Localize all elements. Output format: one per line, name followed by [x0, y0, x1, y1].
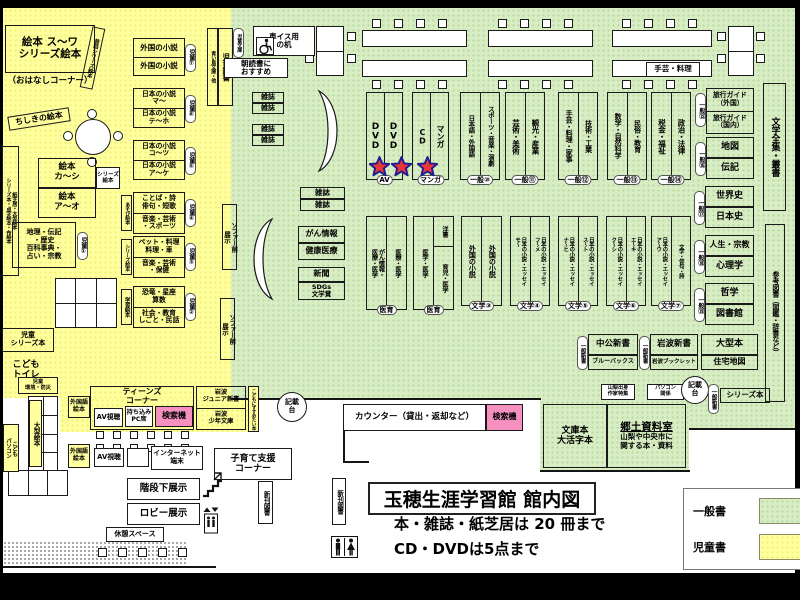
shelf-cell	[76, 304, 95, 328]
chair	[181, 431, 189, 439]
shelf-gakushu-ehon: 学習絵本	[121, 289, 132, 325]
display-lobby: ロビー展示	[127, 503, 200, 525]
chair	[666, 19, 675, 28]
tag-jido-6: 児童⑥	[185, 95, 196, 123]
chair	[622, 80, 631, 89]
shelf-general-12: 手芸・料理・家事技術・工業一般⑫	[558, 92, 598, 180]
chair	[644, 80, 653, 89]
display-pc-books: パソコン関係	[647, 384, 684, 400]
shelf-magazines: 雑誌	[252, 135, 284, 146]
star-marker	[417, 156, 438, 177]
chair	[644, 19, 653, 28]
legend-label-children: 児童書	[693, 539, 726, 555]
counter-edge	[343, 431, 345, 463]
shelf-cell	[9, 471, 28, 495]
counter-edge	[343, 461, 369, 463]
shelf-literature-4: 日本の小説・エッセイモ〜日本の小説・エッセイフ〜メ文学④	[510, 216, 550, 306]
shelf-cell	[97, 279, 116, 303]
chair	[622, 19, 631, 28]
shelf-medical-2: 医学・医学洋書育児・医学医育	[413, 216, 454, 310]
writing-stand-right: 記載台	[681, 376, 709, 404]
shelf-literature-3: 外国の小説外国の小説文学③	[461, 216, 502, 306]
display-asadokusho: 朝読書におすすめ	[224, 58, 288, 78]
tag-general-15: 一般⑮	[695, 93, 706, 127]
shelf-cell	[97, 304, 116, 328]
lobby-bench	[8, 470, 68, 496]
shelf-kyoryu-seiza: 恐竜・星座算数社会・教育しごと・民話	[133, 286, 185, 328]
reading-table	[488, 30, 593, 47]
display-sofa-front-2: ソファー前展示	[220, 298, 235, 360]
shelf-bunkobon: 文庫本大活字本	[543, 404, 607, 468]
shelf-chiri-denki: 地理・伝記・歴史百科事典・占い・宗教	[12, 222, 76, 268]
tag-general-16: 一般⑯	[695, 142, 706, 176]
chair	[564, 19, 573, 28]
shelf-cell	[48, 471, 67, 495]
chair	[130, 431, 138, 439]
shelf-ehon-ka-shi: 絵本カ〜シ	[38, 158, 96, 188]
shelf-world-history: 世界史	[705, 186, 754, 207]
shelf-magazines: 雑誌	[252, 103, 284, 114]
kids-chair	[87, 109, 97, 119]
shelf-general-13: 数学・自然科学民俗・教育一般⑬	[607, 92, 647, 180]
kids-pc-corner: こどもパソコン	[3, 424, 19, 472]
shelf-general-11: 芸術・美術観光・産業一般⑪	[505, 92, 545, 180]
shelf-cell	[56, 304, 75, 328]
chair	[520, 19, 529, 28]
shelf-kotoba-shi: ことば・詩俳句・短歌音楽・芸術・スポーツ	[133, 192, 185, 234]
internet-terminal: インターネット端末	[151, 446, 203, 470]
reading-table	[728, 26, 754, 76]
shelf-large-books: 大型本	[701, 334, 758, 355]
shelf-iwanami-booklet: 岩波ブックレット	[650, 355, 698, 370]
av-limit-note: CD・DVDは5点まで	[394, 538, 539, 559]
reading-table	[316, 26, 344, 76]
writing-stand-left: 記載台	[277, 392, 307, 422]
legend-label-general: 一般書	[693, 503, 726, 519]
search-terminal-teens: 検索機	[155, 406, 193, 427]
shelf-psychology: 心理学	[705, 256, 754, 277]
shelf-health-medical: 健康医療	[298, 243, 345, 260]
tag-shinsho-1: 一般新書	[577, 336, 588, 370]
legend-swatch-children	[759, 534, 800, 560]
tag-jido-1: 児童①	[77, 232, 88, 260]
tag-jido-7: 児童⑦	[185, 44, 196, 72]
shelf-iwanami-junior: 岩波ジュニア新書岩波少年文庫	[196, 386, 246, 430]
chair	[158, 548, 167, 557]
elevator-icon	[203, 507, 219, 535]
restroom-icon	[331, 536, 358, 558]
search-terminal-main: 検索機	[486, 404, 523, 431]
chair	[498, 80, 507, 89]
legend-swatch-general	[759, 498, 800, 524]
shelf-reference-books: 参考図書（図鑑・辞書など）	[765, 224, 785, 402]
chair	[564, 80, 573, 89]
shelf-newspaper: 新聞	[298, 267, 345, 282]
shelf-literature-6: 日本の小説・エッセイク〜シ日本の小説・エッセイエ〜キ文学⑥	[606, 216, 646, 306]
shelf-general-14: 税金・福祉政治・法律一般⑭	[651, 92, 691, 180]
shelf-general-10: 日本語・外国語スポーツ・音楽・演劇一般⑩	[460, 92, 500, 180]
shelf-series-ehon-2: シリーズ絵本	[121, 239, 132, 275]
shelf-library-science: 図書館	[705, 304, 754, 325]
shelf-cell	[44, 453, 58, 471]
chair	[756, 54, 765, 63]
shelf-iwanami-shinsho: 岩波新書	[650, 334, 698, 355]
display-under-stairs: 階段下展示	[127, 478, 200, 500]
shelf-medical-1: がん情報・医療・医学医療・医学医育	[366, 216, 407, 310]
tag-jido-bunko: 児童文庫	[233, 28, 244, 58]
chair	[542, 19, 551, 28]
kids-round-table	[75, 119, 111, 155]
label-teens-corner: ティーンズコーナー	[92, 387, 192, 407]
borrow-limit-note: 本・雑誌・紙芝居は 20 冊まで	[394, 513, 605, 534]
library-floor-map: 絵本 ス〜ワシリーズ絵本（おはなしコーナー）昔話シリーズ絵本ちしきの絵本絵本カ〜…	[0, 0, 800, 600]
chair	[416, 80, 425, 89]
kids-chair	[113, 131, 123, 141]
star-marker	[369, 156, 390, 177]
shelf-new-books-1: 新刊図書	[258, 481, 273, 524]
chair	[147, 431, 155, 439]
shelf-cell	[29, 471, 48, 495]
shelf-pet-ryori: ペット・料理料理・車音楽・芸術・保健	[133, 236, 185, 278]
tag-jido-3: 児童③	[185, 243, 196, 271]
shelf-literature-complete: 文学全集・叢書	[763, 83, 786, 211]
av-booth-1: AV視聴	[94, 408, 123, 427]
shelf-recommended-kids: こどもにすすめたい本	[248, 386, 259, 432]
chair	[372, 19, 381, 28]
shelf-cell	[76, 279, 95, 303]
shelf-ogata-ehon: 大型絵本	[29, 400, 42, 467]
booth-blank	[127, 448, 149, 467]
tag-series-ehon: シリーズ絵本	[96, 167, 120, 189]
chair	[416, 19, 425, 28]
kids-chair	[63, 131, 73, 141]
shelf-ehon-a-o: 絵本ア〜オ	[38, 188, 96, 218]
chair	[498, 19, 507, 28]
chair	[438, 80, 447, 89]
chair	[118, 548, 127, 557]
shelf-asobi-ehon: あそび絵本	[121, 195, 132, 231]
reading-table	[488, 60, 593, 77]
wall	[540, 470, 690, 472]
shelf-chuko-shinsho: 中公新書	[588, 334, 638, 355]
display-yamanashi-authors: 山梨出身作家特集	[601, 384, 635, 400]
display-shugei-ryori: 手芸・料理	[646, 62, 700, 77]
chair	[394, 19, 403, 28]
chair	[666, 80, 675, 89]
tag-jido-5: 児童⑤	[185, 147, 196, 175]
tag-general-17: 一般⑰	[694, 191, 705, 225]
chair	[520, 80, 529, 89]
chair	[98, 548, 107, 557]
shelf-cell	[56, 279, 75, 303]
legend-row-general: 一般書	[693, 498, 800, 524]
av-booth-2: AV視聴	[94, 448, 124, 467]
chair	[717, 54, 726, 63]
legend-row-children: 児童書	[693, 534, 800, 560]
kyodo-shiryo-room: 郷土資料室山梨や中央市に関する本・資料	[607, 404, 686, 468]
chair	[138, 548, 147, 557]
shelf-literature-5: 日本の小説・エッセイナ〜ヒ日本の小説・エッセイス〜ト文学⑤	[558, 216, 598, 306]
shelf-travel-guide: 旅行ガイド（外国）旅行ガイド（国内）	[706, 88, 754, 134]
shelf-cell	[44, 416, 58, 434]
shelf-magazines: 雑誌	[300, 187, 345, 199]
display-sofa-front-1: ソファー前展示	[222, 204, 237, 270]
tag-general-18: 一般⑱	[694, 240, 705, 274]
shelf-philosophy: 哲学	[705, 283, 754, 304]
shelf-aoitori-bunko: 青い鳥文庫・他	[207, 28, 218, 106]
shelf-ehon-su-wa: 絵本 ス〜ワシリーズ絵本	[5, 25, 95, 73]
chair	[113, 431, 121, 439]
shelf-kids-environment: 児童環境・防災	[18, 377, 58, 394]
shelf-new-books-2: 新刊図書	[332, 478, 346, 525]
shelf-biography: 伝記	[706, 158, 754, 179]
shelf-sdgs: SDGs文学賞	[298, 282, 345, 300]
wall	[3, 566, 216, 568]
shelf-magazines: 雑誌	[252, 92, 284, 103]
shelf-cancer-info: がん情報	[298, 226, 345, 243]
chair	[438, 19, 447, 28]
reading-table	[362, 60, 467, 77]
tag-jido-4: 児童④	[185, 199, 196, 227]
rest-space-label: 休憩スペース	[106, 527, 164, 542]
tag-shinsho-3: 一般新書	[708, 384, 719, 414]
shelf-grid-a	[55, 278, 117, 328]
shelf-jp-novels-ma: 日本の小説マ〜日本の小説テ〜ホ	[133, 88, 185, 128]
shelf-magazines: 雑誌	[300, 199, 345, 211]
tag-general-19: 一般⑲	[694, 288, 705, 322]
chair	[688, 19, 697, 28]
shelf-foreign-ehon-2: 外国語絵本	[68, 444, 90, 468]
chair	[372, 80, 381, 89]
page-title: 玉穂生涯学習館 館内図	[368, 482, 596, 515]
chair	[542, 80, 551, 89]
shelf-japan-history: 日本史	[705, 207, 754, 228]
shelf-cell	[44, 397, 58, 415]
chair	[164, 431, 172, 439]
wheelchair-icon	[256, 37, 274, 55]
tag-jido-2: 児童②	[185, 293, 196, 321]
chair	[347, 54, 356, 63]
reading-table	[362, 30, 467, 47]
chair	[178, 548, 187, 557]
shelf-magazines: 雑誌	[252, 124, 284, 135]
chair	[394, 80, 403, 89]
shelf-jutaku-map: 住宅地図	[701, 355, 758, 370]
chair	[347, 32, 356, 41]
shelf-cell	[44, 435, 58, 453]
shelf-jido-series-bon: 児童シリーズ本	[2, 328, 54, 352]
shelf-jp-novels-ko: 日本の小説コ〜ツ日本の小説ア〜ケ	[133, 140, 185, 180]
chair	[756, 32, 765, 41]
tag-shinsho-2: 一般新書	[639, 336, 650, 370]
reading-table	[612, 30, 712, 47]
sofa	[313, 88, 351, 174]
shelf-literature-7: 日本の小説・エッセイア〜ウ文学・俳句・詩文学⑦	[651, 216, 691, 306]
sofa	[240, 216, 278, 302]
chair	[688, 80, 697, 89]
stairs-icon	[201, 472, 223, 498]
star-marker	[391, 156, 412, 177]
shelf-foreign-ehon-1: 外国語絵本	[68, 396, 90, 418]
byo-pc-seat: 持ち込みPC席	[125, 406, 153, 427]
shelf-maps: 地図	[706, 137, 754, 158]
legend: 一般書 児童書	[683, 488, 800, 570]
kosodate-support-corner: 子育て支援コーナー	[214, 448, 292, 480]
service-counter: カウンター（貸出・返却など）	[343, 404, 486, 431]
shelf-life-religion: 人生・宗教	[705, 235, 754, 256]
shelf-foreign-novels-kids: 外国の小説外国の小説	[133, 38, 185, 76]
chair	[96, 431, 104, 439]
shelf-bluebacks: ブルーバックス	[588, 355, 638, 370]
wall	[689, 428, 795, 430]
shelf-series-bon: シリーズ本	[720, 388, 770, 403]
chair	[717, 32, 726, 41]
